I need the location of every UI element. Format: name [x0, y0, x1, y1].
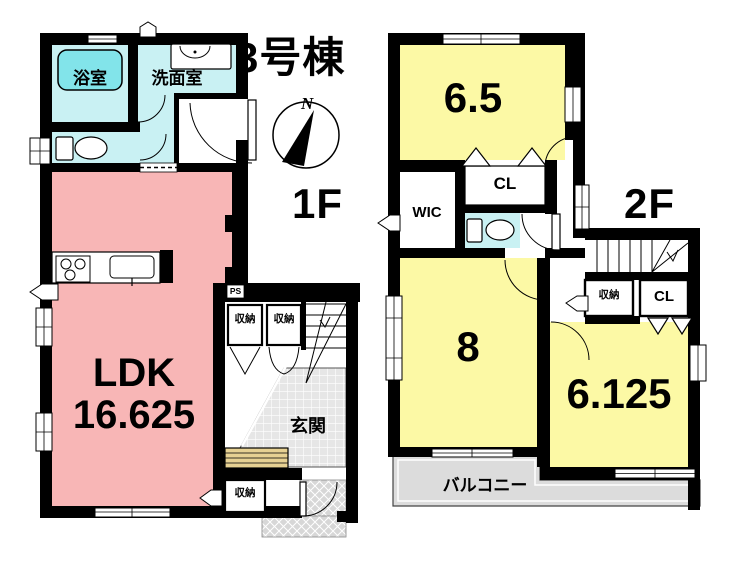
wic-label: WIC: [398, 205, 456, 221]
storage3-label: 収納: [225, 488, 265, 499]
vent-arrow-icon: [378, 215, 400, 231]
ldk-name: LDK: [58, 352, 210, 394]
toilet1-icon: [56, 137, 107, 160]
storage1-label: 収納: [228, 314, 262, 325]
floor2-label: 2F: [624, 182, 675, 226]
closet2-label: CL: [640, 289, 688, 305]
washbasin-icon: [171, 44, 231, 69]
stove-icon: [56, 256, 90, 282]
bedroom2-area-label: 8: [430, 325, 506, 369]
hall-door-leaf: [248, 100, 256, 160]
ps-label: PS: [227, 285, 244, 298]
stairs2-icon: [597, 240, 688, 272]
door-flag-icon: [140, 22, 156, 37]
entrance-door-leaf: [300, 482, 306, 516]
vent-arrow-icon: [30, 284, 58, 300]
compass-north-label: N: [301, 95, 313, 113]
floorplan-canvas: 3号棟 1F 2F N 浴室 洗面室 LDK 16.625 玄関 収納 収納 収…: [0, 0, 740, 564]
balcony-label: バルコニー: [405, 477, 565, 495]
toilet2-door-leaf: [552, 214, 560, 250]
bath-label: 浴室: [62, 70, 118, 88]
floor1-label: 1F: [292, 182, 343, 226]
porch-floor-b: [262, 516, 346, 537]
ldk-label: LDK 16.625: [58, 352, 210, 436]
ldk-area: 16.625: [58, 394, 210, 436]
bedroom1-area-label: 6.5: [428, 76, 518, 120]
washroom-label: 洗面室: [141, 70, 213, 88]
storage2-label: 収納: [267, 314, 301, 325]
page-title: 3号棟: [235, 36, 345, 80]
storage4-label: 収納: [585, 290, 633, 301]
closet1-label: CL: [465, 175, 545, 193]
storage1-door: [230, 347, 260, 374]
kitchen-icon: [52, 252, 160, 286]
bedroom3-area-label: 6.125: [550, 372, 688, 416]
genkan-label: 玄関: [276, 417, 340, 436]
ldk-floor-main: [52, 172, 213, 506]
kitchen-sink-icon: [110, 256, 154, 278]
